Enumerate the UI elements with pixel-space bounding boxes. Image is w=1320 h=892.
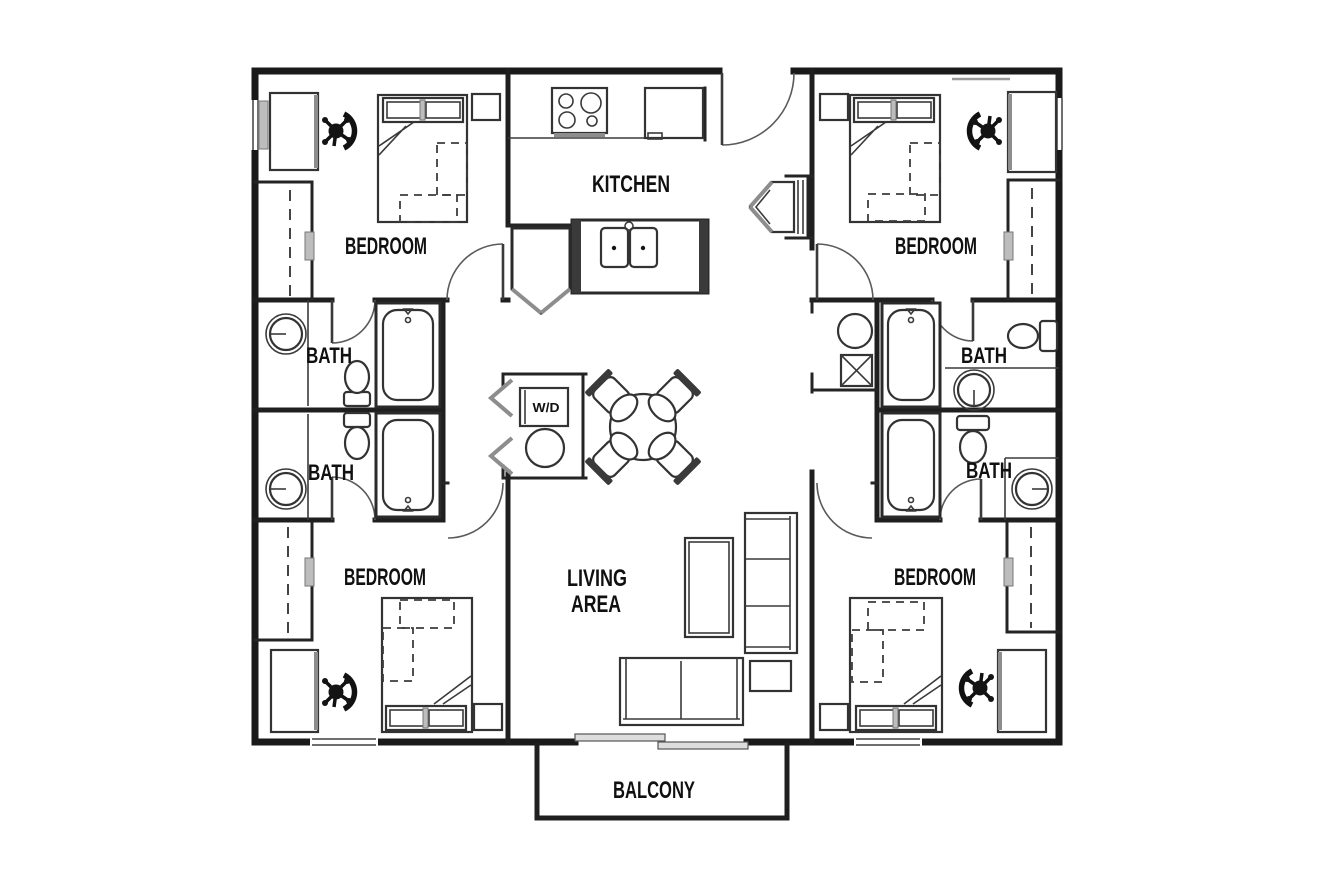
kitchen-island <box>572 220 708 293</box>
fridge-icon <box>645 88 703 139</box>
bedroom-tr-door-arc <box>817 244 873 300</box>
toilet-icon <box>344 413 370 459</box>
toilet-icon <box>1008 321 1057 351</box>
desk-icon <box>271 650 318 732</box>
floor-plan: BEDROOM KITCHEN BEDROOM BATH BATH BATH B… <box>0 0 1320 892</box>
bed-icon <box>382 598 472 732</box>
bed-icon <box>378 95 467 222</box>
room-kitchen <box>508 88 708 313</box>
sliding-door <box>575 734 748 749</box>
sink-icon <box>1012 469 1052 509</box>
entry-door-arc <box>722 73 794 145</box>
sofa-icon <box>745 513 797 653</box>
label-bath-left-upper: BATH <box>306 343 352 368</box>
room-bedroom-bottom-left <box>271 598 502 732</box>
desk-icon <box>270 93 318 170</box>
label-bath-right-lower: BATH <box>966 458 1012 483</box>
bath-l1-door-arc <box>332 300 375 343</box>
label-kitchen: KITCHEN <box>592 171 670 198</box>
room-living-area <box>620 513 797 725</box>
bath-r2-door-arc <box>940 479 981 520</box>
bed-icon <box>850 598 942 732</box>
entry-closet <box>750 182 794 232</box>
closet-door-tr <box>1004 232 1013 260</box>
bathtub-icon <box>882 303 940 407</box>
toilet-icon <box>957 416 989 463</box>
label-living-area-line2: AREA <box>571 591 621 618</box>
sink-icon <box>954 370 994 410</box>
sink-icon <box>266 469 306 509</box>
label-bath-left-lower: BATH <box>308 460 354 485</box>
nightstand-icon <box>820 704 848 730</box>
label-bedroom-top-left: BEDROOM <box>345 233 427 260</box>
desk-chair-icon <box>322 675 355 709</box>
side-table-icon <box>750 661 791 691</box>
label-bedroom-top-right: BEDROOM <box>895 233 977 260</box>
water-heater-icon <box>838 314 872 348</box>
closet-door-br <box>1004 558 1013 586</box>
nightstand-icon <box>474 704 502 730</box>
desk-chair-icon <box>322 114 355 148</box>
bedroom-bl-door-arc <box>448 483 503 538</box>
bathtub-icon <box>376 303 440 407</box>
washer-drum-icon <box>526 429 564 467</box>
closet-door-tl <box>305 232 314 260</box>
bathtub-icon <box>376 413 440 517</box>
utility-closet <box>838 314 872 386</box>
bathtub-icon <box>882 413 940 517</box>
corner-pantry-icon <box>512 228 570 313</box>
bedroom-br-door-arc <box>817 483 872 538</box>
label-balcony: BALCONY <box>613 777 695 804</box>
desk-chair-icon <box>961 671 994 705</box>
label-bath-right-upper: BATH <box>961 343 1007 368</box>
dining-set <box>584 368 701 485</box>
room-bedroom-bottom-right <box>820 598 1046 732</box>
bed-icon <box>850 95 940 222</box>
laundry-closet <box>491 380 568 474</box>
coffee-table-icon <box>685 538 733 637</box>
nightstand-icon <box>820 94 848 120</box>
desk-chair-icon <box>969 114 1002 148</box>
bath-left-upper <box>266 303 440 407</box>
bedroom-tl-door-arc <box>447 244 503 300</box>
floor-plan-drawing: BEDROOM KITCHEN BEDROOM BATH BATH BATH B… <box>0 0 1320 892</box>
label-bedroom-bottom-left: BEDROOM <box>344 564 426 591</box>
label-living-area-line1: LIVING <box>567 565 627 592</box>
stove-icon <box>552 88 607 135</box>
desk-icon <box>1008 92 1056 172</box>
room-bedroom-top-right <box>820 92 1056 222</box>
closet-door-bl <box>305 558 314 586</box>
sink-icon <box>266 314 306 354</box>
label-bedroom-bottom-right: BEDROOM <box>894 564 976 591</box>
loveseat-icon <box>620 658 743 725</box>
desk-icon <box>998 650 1046 732</box>
window-bottom-right <box>854 735 922 748</box>
label-washer-dryer: W/D <box>533 400 560 415</box>
room-bedroom-top-left <box>270 93 500 222</box>
window-bottom-left <box>310 735 378 748</box>
nightstand-icon <box>472 94 500 120</box>
mechanical-icon <box>841 355 872 386</box>
